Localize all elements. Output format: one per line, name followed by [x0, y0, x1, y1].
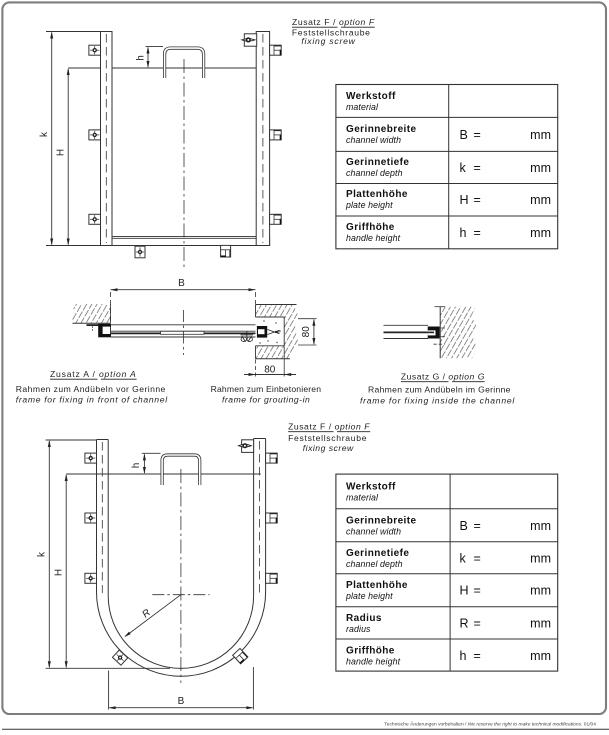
svg-text:radius: radius	[346, 624, 371, 634]
svg-text:frame for fixing inside the ch: frame for fixing inside the channel	[360, 396, 515, 406]
svg-text:fixing screw: fixing screw	[301, 36, 355, 46]
svg-text:handle height: handle height	[346, 233, 401, 243]
svg-text:plate height: plate height	[345, 591, 393, 601]
svg-text:fixing screw: fixing screw	[303, 443, 354, 453]
svg-text:channel width: channel width	[346, 527, 401, 537]
svg-text:=: =	[474, 584, 481, 598]
svg-text:R: R	[460, 617, 469, 631]
svg-text:Werkstoff: Werkstoff	[346, 482, 396, 493]
svg-text:80: 80	[264, 364, 276, 375]
svg-text:Rahmen zum Andübeln vor Gerinn: Rahmen zum Andübeln vor Gerinne	[16, 384, 166, 394]
svg-text:=: =	[474, 161, 481, 175]
svg-text:=: =	[474, 226, 481, 240]
svg-text:=: =	[474, 519, 481, 533]
svg-text:Feststellschraube: Feststellschraube	[288, 433, 367, 443]
svg-text:mm: mm	[530, 226, 551, 240]
svg-text:Rahmen zum Andübeln im Gerinne: Rahmen zum Andübeln im Gerinne	[368, 385, 511, 395]
svg-text:Gerinnetiefe: Gerinnetiefe	[346, 157, 409, 168]
svg-text:mm: mm	[530, 128, 551, 142]
svg-text:Plattenhöhe: Plattenhöhe	[346, 580, 408, 591]
svg-text:channel depth: channel depth	[346, 168, 403, 178]
svg-text:Griffhöhe: Griffhöhe	[346, 646, 395, 657]
svg-text:mm: mm	[530, 519, 551, 533]
svg-text:handle height: handle height	[346, 657, 401, 667]
svg-text:mm: mm	[530, 193, 551, 207]
svg-text:material: material	[346, 493, 379, 503]
svg-text:Zusatz A / option A: Zusatz A / option A	[50, 369, 137, 379]
svg-text:mm: mm	[530, 552, 551, 566]
svg-text:H: H	[460, 193, 469, 207]
svg-text:H: H	[56, 149, 67, 156]
svg-text:h: h	[460, 226, 467, 240]
svg-text:frame for grouting-in: frame for grouting-in	[222, 395, 310, 405]
svg-text:=: =	[474, 617, 481, 631]
svg-text:h: h	[136, 55, 147, 61]
svg-text:channel width: channel width	[346, 135, 401, 145]
svg-text:Werkstoff: Werkstoff	[346, 91, 396, 102]
svg-text:channel depth: channel depth	[346, 559, 403, 569]
svg-text:Rahmen zum Einbetonieren: Rahmen zum Einbetonieren	[211, 384, 322, 394]
svg-text:=: =	[474, 128, 481, 142]
svg-text:=: =	[474, 649, 481, 663]
svg-text:H: H	[460, 584, 469, 598]
svg-text:Gerinnetiefe: Gerinnetiefe	[346, 548, 409, 559]
svg-text:mm: mm	[530, 617, 551, 631]
svg-text:H: H	[54, 569, 65, 576]
svg-text:h: h	[131, 463, 142, 469]
svg-text:Zusatz F / option F: Zusatz F / option F	[288, 422, 370, 432]
svg-text:Zusatz G / option G: Zusatz G / option G	[401, 372, 485, 382]
svg-text:h: h	[460, 649, 467, 663]
svg-text:Technische Änderungen vorbehal: Technische Änderungen vorbehalten / We r…	[384, 721, 596, 728]
svg-text:k: k	[460, 161, 467, 175]
svg-text:mm: mm	[530, 649, 551, 663]
svg-text:B: B	[178, 278, 185, 289]
svg-text:B: B	[460, 519, 468, 533]
svg-text:material: material	[346, 102, 379, 112]
svg-text:Radius: Radius	[346, 613, 382, 624]
svg-text:B: B	[460, 128, 468, 142]
svg-text:mm: mm	[530, 161, 551, 175]
svg-text:Griffhöhe: Griffhöhe	[346, 222, 395, 233]
svg-text:Zusatz F / option F: Zusatz F / option F	[292, 17, 375, 27]
svg-text:Gerinnebreite: Gerinnebreite	[346, 124, 416, 135]
svg-text:Plattenhöhe: Plattenhöhe	[346, 189, 408, 200]
svg-text:plate height: plate height	[345, 200, 393, 210]
svg-text:Gerinnebreite: Gerinnebreite	[346, 516, 416, 527]
svg-text:=: =	[474, 552, 481, 566]
svg-text:B: B	[178, 696, 185, 707]
svg-text:80: 80	[301, 326, 312, 338]
svg-text:frame for fixing in front of c: frame for fixing in front of channel	[16, 395, 168, 405]
svg-text:=: =	[474, 193, 481, 207]
svg-text:k: k	[460, 552, 467, 566]
svg-text:mm: mm	[530, 584, 551, 598]
